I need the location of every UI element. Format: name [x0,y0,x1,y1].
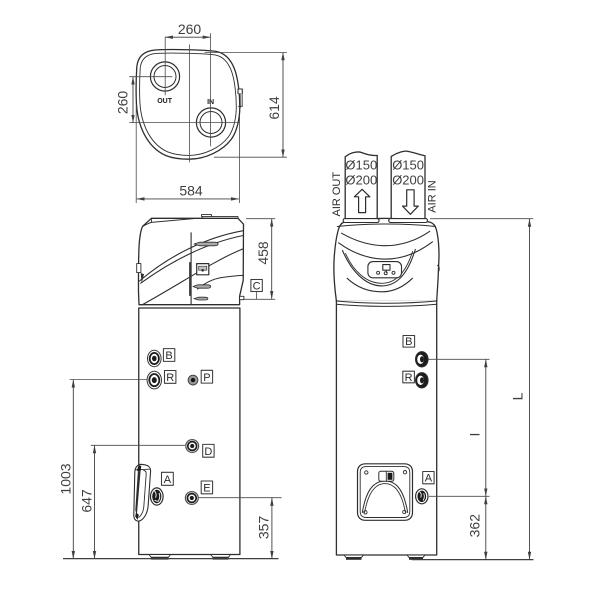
svg-text:C: C [253,280,261,292]
svg-text:647: 647 [79,489,95,513]
svg-text:I: I [467,433,483,437]
svg-text:B: B [405,336,412,348]
svg-text:AIR OUT: AIR OUT [331,172,343,217]
svg-text:Ø150: Ø150 [345,158,377,173]
svg-text:OUT: OUT [157,98,173,105]
svg-text:R: R [405,372,413,384]
svg-text:260: 260 [178,21,202,37]
svg-text:A: A [164,474,172,486]
svg-text:R: R [166,372,174,384]
svg-text:362: 362 [467,514,483,538]
svg-text:260: 260 [115,91,131,115]
svg-text:357: 357 [255,516,271,540]
svg-text:L: L [510,392,526,400]
svg-text:Ø200: Ø200 [392,173,424,188]
svg-text:614: 614 [266,96,282,120]
svg-text:Ø150: Ø150 [392,158,424,173]
svg-text:P: P [203,372,210,384]
svg-text:B: B [165,350,172,362]
svg-text:Ø200: Ø200 [345,173,377,188]
svg-text:1003: 1003 [58,463,74,494]
svg-text:A: A [425,473,433,485]
svg-text:584: 584 [179,183,203,199]
svg-text:AIR IN: AIR IN [427,180,439,212]
svg-text:458: 458 [255,241,271,265]
svg-text:E: E [203,483,210,495]
svg-text:D: D [204,446,212,458]
